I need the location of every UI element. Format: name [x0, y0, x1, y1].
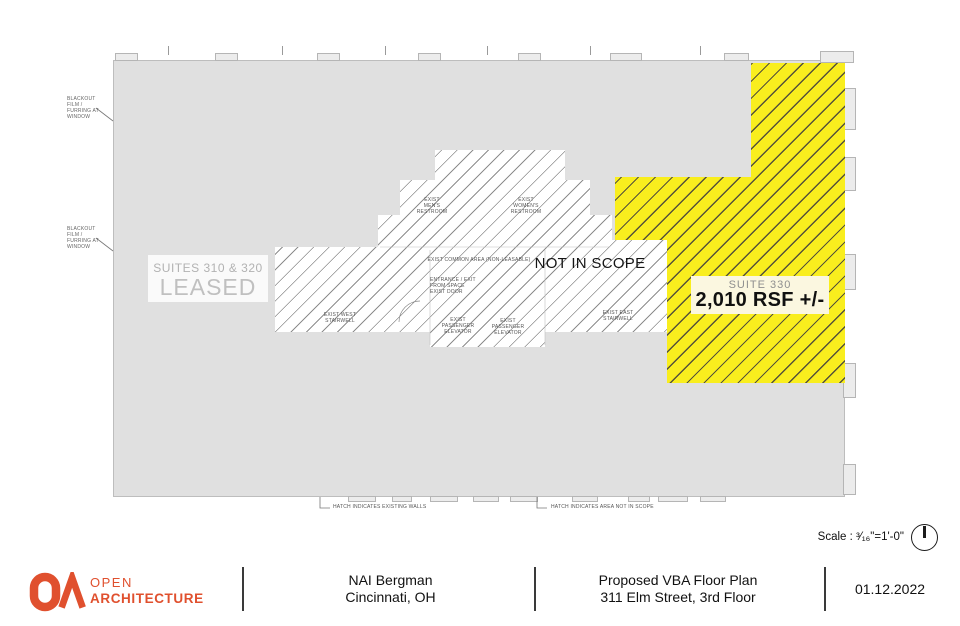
- room-label-womens-restroom: EXISTWOMEN'SRESTROOM: [506, 197, 546, 215]
- room-label-passenger-elevator-2: EXISTPASSENGERELEVATOR: [488, 318, 528, 336]
- blackout-film-note-1: BLACKOUTFILM /FURRING ATWINDOW: [67, 96, 115, 120]
- project-title: Proposed VBA Floor Plan: [548, 572, 808, 589]
- window-bump: [510, 496, 538, 502]
- titleblock-divider: [824, 567, 826, 611]
- mullion-tick: [700, 46, 701, 55]
- window-bump: [348, 496, 376, 502]
- client-name: NAI Bergman: [268, 572, 513, 589]
- north-needle: [923, 526, 926, 538]
- scale-label: Scale : ³⁄₁₆"=1'-0": [788, 531, 904, 543]
- window-bump: [843, 464, 856, 495]
- window-bump: [658, 496, 688, 502]
- window-bump: [418, 53, 441, 61]
- mullion-tick: [168, 46, 169, 55]
- suite-330-tag: SUITE 330 2,010 RSF +/-: [691, 276, 829, 314]
- mullion-tick: [385, 46, 386, 55]
- client-block: NAI Bergman Cincinnati, OH: [268, 572, 513, 606]
- window-bump: [628, 496, 650, 502]
- logo-mark-icon: [28, 572, 86, 612]
- window-bump: [317, 53, 340, 61]
- leased-text: LEASED: [148, 274, 268, 301]
- suites-numbers-text: SUITES 310 & 320: [148, 261, 268, 275]
- note-area-not-in-scope: HATCH INDICATES AREA NOT IN SCOPE: [551, 504, 654, 510]
- titleblock-divider: [242, 567, 244, 611]
- titleblock-divider: [534, 567, 536, 611]
- window-bump: [518, 53, 541, 61]
- window-bump: [115, 53, 138, 61]
- blackout-film-note-2: BLACKOUTFILM /FURRING ATWINDOW: [67, 226, 115, 250]
- window-bump: [215, 53, 238, 61]
- project-block: Proposed VBA Floor Plan 311 Elm Street, …: [548, 572, 808, 606]
- project-address: 311 Elm Street, 3rd Floor: [548, 589, 808, 606]
- window-bump: [392, 496, 412, 502]
- window-bump: [430, 496, 458, 502]
- window-bump: [820, 51, 854, 63]
- logo-word-open: OPEN: [90, 575, 204, 590]
- room-label-mens-restroom: EXISTMEN'SRESTROOM: [412, 197, 452, 215]
- window-bump: [572, 496, 598, 502]
- suites-310-320-leased-label: SUITES 310 & 320 LEASED: [148, 255, 268, 302]
- room-label-east-stairwell: EXIST EASTSTAIRWELL: [593, 310, 643, 322]
- client-city: Cincinnati, OH: [268, 589, 513, 606]
- room-label-passenger-elevator-1: EXISTPASSENGERELEVATOR: [438, 317, 478, 335]
- floor-plan-sheet: BLACKOUTFILM /FURRING ATWINDOW BLACKOUTF…: [0, 0, 960, 626]
- room-label-entrance-exit: ENTRANCE / EXITFROM SPACEEXIST DOOR: [430, 277, 478, 295]
- suite-330-area: 2,010 RSF +/-: [691, 289, 829, 312]
- company-logo: [28, 572, 86, 617]
- logo-word-architecture: ARCHITECTURE: [90, 591, 204, 606]
- window-bump: [473, 496, 499, 502]
- north-arrow-icon: [911, 524, 938, 551]
- not-in-scope-label: NOT IN SCOPE: [520, 255, 660, 272]
- note-existing-walls: HATCH INDICATES EXISTING WALLS: [333, 504, 426, 510]
- company-name: OPEN ARCHITECTURE: [90, 575, 204, 606]
- mullion-tick: [590, 46, 591, 55]
- mullion-tick: [282, 46, 283, 55]
- sheet-date: 01.12.2022: [830, 581, 950, 598]
- window-bump: [724, 53, 749, 61]
- mullion-tick: [487, 46, 488, 55]
- window-bump: [700, 496, 726, 502]
- window-bump: [610, 53, 642, 61]
- room-label-west-stairwell: EXIST WESTSTAIRWELL: [315, 312, 365, 324]
